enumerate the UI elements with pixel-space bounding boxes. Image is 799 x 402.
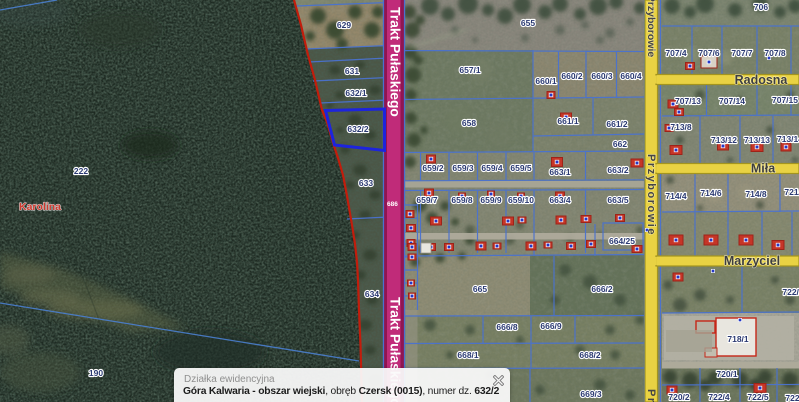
svg-text:Miła: Miła — [751, 162, 776, 176]
svg-text:707/4: 707/4 — [665, 48, 687, 58]
svg-text:661/1: 661/1 — [557, 116, 579, 126]
svg-text:666/8: 666/8 — [496, 322, 518, 332]
svg-text:Marzyciel: Marzyciel — [724, 254, 780, 268]
svg-text:714/4: 714/4 — [665, 191, 687, 201]
svg-text:Karolina: Karolina — [19, 201, 61, 213]
svg-text:190: 190 — [89, 368, 103, 378]
svg-text:661/2: 661/2 — [606, 119, 628, 129]
svg-text:660/1: 660/1 — [535, 76, 557, 86]
svg-text:663/2: 663/2 — [607, 165, 629, 175]
svg-text:659/7: 659/7 — [416, 195, 438, 205]
svg-text:722/6: 722/6 — [785, 393, 799, 402]
svg-text:686: 686 — [387, 201, 398, 208]
svg-text:668/1: 668/1 — [457, 350, 479, 360]
svg-text:659/2: 659/2 — [422, 163, 444, 173]
svg-text:664/25: 664/25 — [609, 236, 635, 246]
svg-text:713/13: 713/13 — [744, 135, 770, 145]
svg-text:707/7: 707/7 — [731, 48, 753, 58]
svg-text:660/2: 660/2 — [561, 71, 583, 81]
svg-text:721/1: 721/1 — [784, 187, 799, 197]
svg-text:707/13: 707/13 — [675, 96, 701, 106]
svg-text:632/2: 632/2 — [347, 124, 369, 134]
svg-text:668/2: 668/2 — [579, 350, 601, 360]
svg-text:629: 629 — [337, 20, 351, 30]
svg-text:714/8: 714/8 — [745, 189, 767, 199]
svg-text:713/8: 713/8 — [670, 122, 692, 132]
svg-text:659/10: 659/10 — [508, 195, 534, 205]
svg-text:663/1: 663/1 — [549, 167, 571, 177]
svg-text:633: 633 — [359, 178, 373, 188]
svg-text:666/2: 666/2 — [591, 284, 613, 294]
svg-text:722/5: 722/5 — [747, 392, 769, 402]
svg-text:706: 706 — [754, 2, 768, 12]
svg-text:659/4: 659/4 — [481, 163, 503, 173]
svg-text:Przyborowie: Przyborowie — [645, 154, 657, 236]
svg-text:663/4: 663/4 — [549, 195, 571, 205]
svg-text:659/5: 659/5 — [510, 163, 532, 173]
svg-text:659/8: 659/8 — [451, 195, 473, 205]
svg-text:634: 634 — [365, 289, 379, 299]
svg-text:707/14: 707/14 — [719, 96, 745, 106]
svg-text:Przyborowie: Przyborowie — [645, 0, 657, 57]
svg-text:631: 631 — [345, 66, 359, 76]
svg-text:666/9: 666/9 — [540, 321, 562, 331]
svg-text:660/4: 660/4 — [620, 71, 642, 81]
svg-text:720/1: 720/1 — [716, 369, 738, 379]
svg-text:663/5: 663/5 — [607, 195, 629, 205]
svg-text:659/9: 659/9 — [480, 195, 502, 205]
svg-text:662: 662 — [613, 139, 627, 149]
svg-text:222: 222 — [74, 166, 88, 176]
svg-text:660/3: 660/3 — [591, 71, 613, 81]
svg-text:655: 655 — [521, 18, 535, 28]
svg-text:659/3: 659/3 — [452, 163, 474, 173]
svg-text:713/14: 713/14 — [777, 134, 799, 144]
svg-text:720/2: 720/2 — [668, 392, 690, 402]
svg-text:Radosna: Radosna — [735, 73, 789, 87]
svg-text:707/6: 707/6 — [698, 48, 720, 58]
svg-text:714/6: 714/6 — [700, 188, 722, 198]
svg-text:669/3: 669/3 — [580, 389, 602, 399]
svg-text:707/8: 707/8 — [764, 48, 786, 58]
svg-text:722/1: 722/1 — [782, 287, 799, 297]
svg-text:713/12: 713/12 — [711, 135, 737, 145]
svg-text:632/1: 632/1 — [345, 88, 367, 98]
svg-text:722/4: 722/4 — [708, 392, 730, 402]
svg-text:Przyborowie: Przyborowie — [645, 389, 657, 402]
svg-text:657/1: 657/1 — [459, 65, 481, 75]
svg-text:718/1: 718/1 — [727, 334, 749, 344]
svg-text:665: 665 — [473, 284, 487, 294]
svg-text:Trakt Pułaskiego: Trakt Pułaskiego — [388, 7, 403, 117]
svg-text:658: 658 — [462, 118, 476, 128]
svg-text:707/15: 707/15 — [772, 95, 798, 105]
